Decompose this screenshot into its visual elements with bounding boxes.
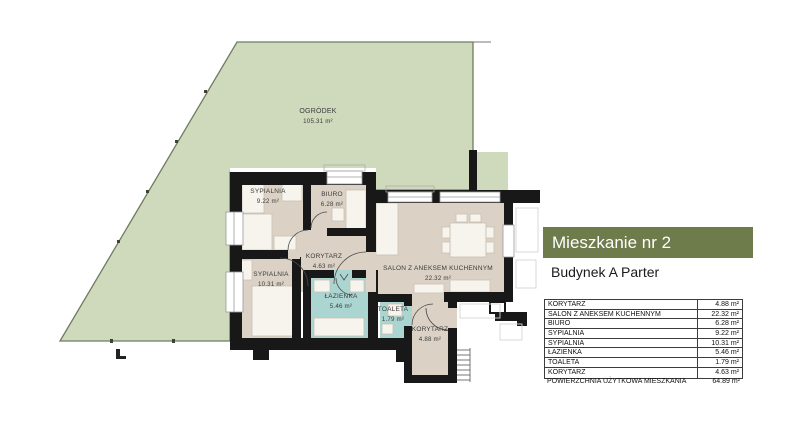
row-area: 10.31 m²	[698, 339, 742, 348]
room-label-lazienka: ŁAZIENKA	[324, 293, 357, 300]
table-row: SYPIALNIA 9.22 m²	[545, 329, 742, 339]
room-label-korytarz-2: KORYTARZ	[412, 326, 448, 333]
room-area-sypialnia-2: 10.31 m²	[258, 281, 284, 288]
room-area-korytarz-1: 4.63 m²	[313, 263, 335, 270]
room-area-sypialnia-1: 9.22 m²	[257, 198, 279, 205]
table-total-row: POWIERZCHNIA UŻYTKOWA MIESZKANIA 64.89 m…	[544, 377, 743, 387]
kitchen-counter	[414, 284, 444, 293]
room-area-salon: 22.32 m²	[425, 275, 451, 282]
window	[503, 225, 514, 257]
table-row: SYPIALNIA 10.31 m²	[545, 339, 742, 349]
stairs-icon	[457, 348, 470, 382]
row-name: BIURO	[545, 319, 698, 328]
table-row: SALON Z ANEKSEM KUCHENNYM 22.32 m²	[545, 310, 742, 320]
window	[226, 272, 243, 312]
sofa	[450, 280, 490, 292]
row-name: ŁAZIENKA	[545, 348, 698, 357]
room-label-sypialnia-1: SYPIALNIA	[250, 188, 286, 195]
sink	[382, 324, 393, 334]
row-name: SYPIALNIA	[545, 329, 698, 338]
table-row: ŁAZIENKA 5.46 m²	[545, 348, 742, 358]
kitchen-counter	[376, 203, 398, 255]
row-name: SYPIALNIA	[545, 339, 698, 348]
table-row: TOALETA 1.79 m²	[545, 358, 742, 368]
wall-segment	[396, 346, 412, 362]
room-label-biuro: BIURO	[321, 191, 343, 198]
room-area-toaleta: 1.79 m²	[382, 316, 404, 323]
row-area: 1.79 m²	[698, 358, 742, 367]
row-area: 9.22 m²	[698, 329, 742, 338]
apartment-title: Mieszkanie nr 2	[543, 227, 753, 258]
building-subtitle: Budynek A Parter	[551, 264, 659, 280]
row-name: TOALETA	[545, 358, 698, 367]
garden-label: OGRÓDEK	[299, 106, 336, 115]
wall-segment	[404, 360, 412, 383]
window	[226, 212, 243, 245]
total-name: POWIERZCHNIA UŻYTKOWA MIESZKANIA	[544, 377, 696, 387]
chair	[486, 227, 494, 238]
room-area-table: KORYTARZ 4.88 m² SALON Z ANEKSEM KUCHENN…	[544, 299, 743, 379]
bathtub	[314, 318, 364, 336]
floor-plan-page: OGRÓDEK 105.31 m² SYPIALNIA 9.22 m² BIUR…	[0, 0, 800, 424]
neighbor-garden-sliver	[477, 152, 508, 190]
chair	[486, 242, 494, 253]
wall-stub	[253, 348, 269, 360]
room-area-korytarz-2: 4.88 m²	[419, 336, 441, 343]
table-row: BIURO 6.28 m²	[545, 319, 742, 329]
room-area-biuro: 6.28 m²	[321, 201, 343, 208]
total-area: 64.89 m²	[696, 377, 743, 387]
sink	[314, 280, 330, 292]
bed	[242, 214, 272, 250]
window	[440, 192, 500, 202]
wall-segment	[303, 172, 311, 230]
chair	[456, 214, 467, 222]
row-area: 6.28 m²	[698, 319, 742, 328]
chair	[442, 227, 450, 238]
wall-segment	[230, 172, 242, 350]
room-area-lazienka: 5.46 m²	[330, 303, 352, 310]
garden-area: 105.31 m²	[303, 118, 333, 125]
table-row: KORYTARZ 4.88 m²	[545, 300, 742, 310]
wall-segment	[292, 257, 301, 338]
wall-segment	[469, 150, 477, 192]
wall-segment	[327, 228, 374, 236]
row-name: KORYTARZ	[545, 300, 698, 309]
room-label-salon: SALON Z ANEKSEM KUCHENNYM	[383, 265, 493, 272]
row-area: 22.32 m²	[698, 310, 742, 319]
bed	[252, 286, 294, 336]
toilet	[350, 280, 364, 292]
desk	[346, 190, 366, 230]
row-name: SALON Z ANEKSEM KUCHENNYM	[545, 310, 698, 319]
wall-segment	[366, 172, 376, 252]
room-label-korytarz-1: KORYTARZ	[306, 253, 342, 260]
chair	[442, 242, 450, 253]
row-area: 4.88 m²	[698, 300, 742, 309]
wall-segment	[374, 294, 412, 302]
chair	[470, 214, 481, 222]
dining-table	[450, 223, 486, 257]
gate-marker	[116, 349, 126, 359]
room-label-sypialnia-2: SYPIALNIA	[253, 271, 289, 278]
wardrobe	[242, 181, 264, 213]
row-area: 5.46 m²	[698, 348, 742, 357]
wall-segment	[444, 292, 513, 302]
room-label-toaleta: TOALETA	[378, 306, 409, 313]
wall-segment	[303, 270, 311, 338]
